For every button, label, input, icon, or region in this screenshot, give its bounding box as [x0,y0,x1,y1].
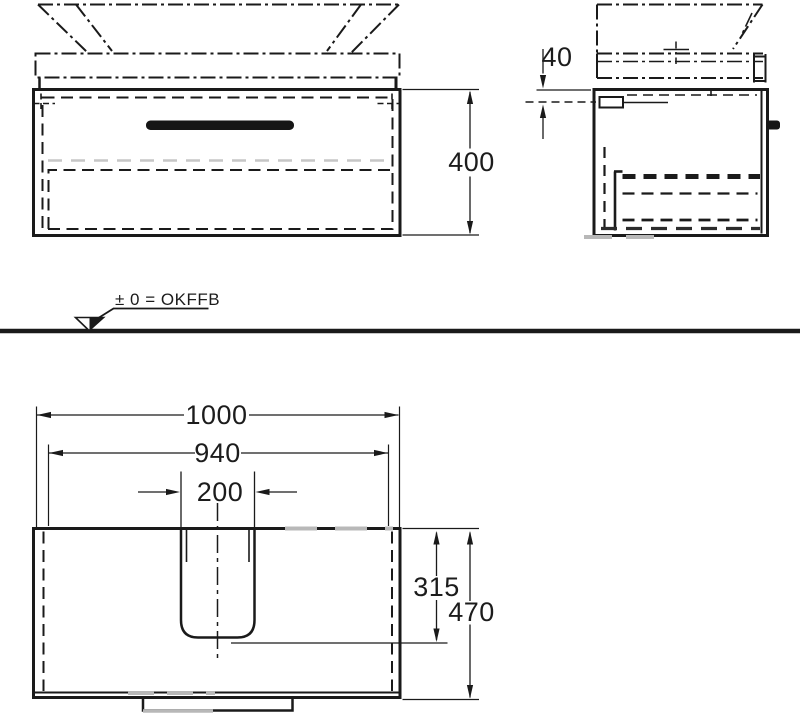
arrow-left-icon [256,489,270,495]
arrow-up-icon [540,105,546,119]
datum-symbol: ± 0 = OKFFB [76,290,221,331]
plan-back-tab [143,698,293,711]
dim-inner-width-label: 940 [194,438,241,468]
arrow-up-icon [433,531,439,545]
front-view [34,5,401,236]
arrow-left-icon [37,412,51,418]
front-corner-marks [34,94,400,113]
arrow-down-icon [433,629,439,643]
front-drawer-handle [146,121,294,131]
datum-leader [92,309,114,323]
plan-ghost-lines [128,529,393,712]
side-countertop [597,54,763,79]
dim-overall-depth: 470 [403,531,495,700]
side-top-rail-section [600,97,624,108]
arrow-right-icon [374,450,388,456]
arrow-right-icon [166,489,180,495]
vanity-dimension-drawing: 400 40 [0,0,800,722]
arrow-left-icon [49,450,63,456]
dim-cabinet-height: 400 [403,90,495,236]
arrow-down-icon [540,75,546,89]
technical-drawing-page: 400 40 [0,0,800,722]
arrow-right-icon [385,412,399,418]
side-view [584,5,780,238]
arrow-down-icon [467,685,473,699]
front-basin-outline [38,5,399,54]
dim-overall-width-label: 1000 [185,400,247,430]
dim-overall-depth-label: 470 [448,597,495,627]
dim-countertop-offset: 40 [526,42,597,139]
datum-label: ± 0 = OKFFB [115,290,220,309]
front-countertop [36,54,400,78]
front-cabinet-body [34,90,401,236]
dim-countertop-offset-label: 40 [541,42,572,72]
dim-cutout-depth: 315 [231,529,479,644]
plan-view [34,503,401,711]
arrow-up-icon [467,531,473,545]
side-cabinet-body [594,90,768,236]
front-drawer-front-hidden [43,98,393,230]
dim-cabinet-height-label: 400 [448,147,495,177]
side-drawer-hidden [601,147,760,231]
arrow-up-icon [467,91,473,105]
side-basin-outline [597,5,763,54]
side-drawer-handle [767,121,781,130]
arrow-down-icon [467,221,473,235]
dim-cutout-width-label: 200 [197,477,244,507]
front-drawer-box-hidden [49,170,394,229]
